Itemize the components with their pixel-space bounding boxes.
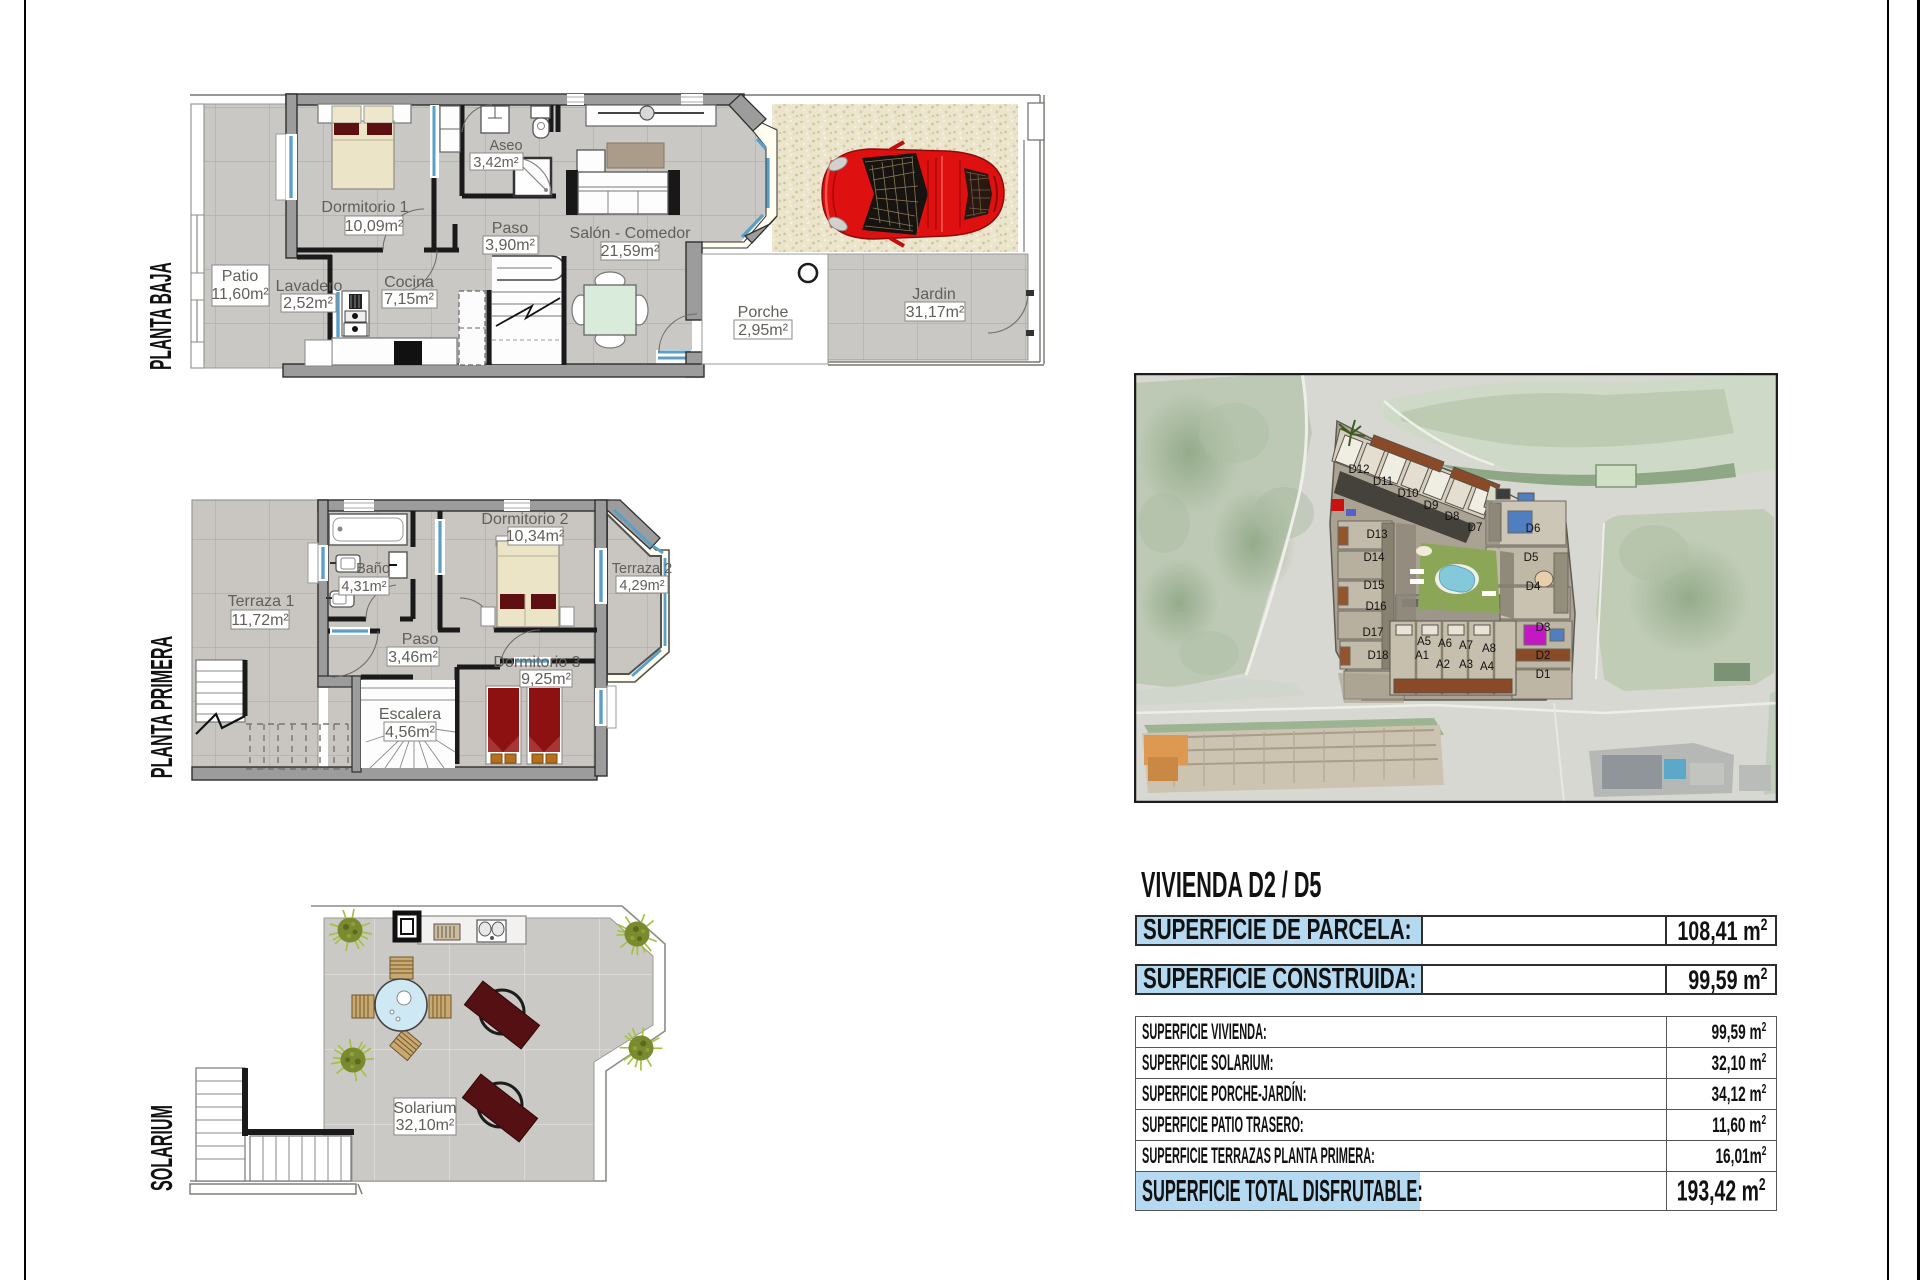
svg-text:D12: D12 — [1348, 464, 1369, 476]
svg-text:Terraza 1: Terraza 1 — [228, 593, 295, 610]
svg-text:21,59m²: 21,59m² — [601, 243, 660, 260]
svg-text:Solarium: Solarium — [393, 1100, 456, 1117]
svg-text:D4: D4 — [1526, 581, 1541, 593]
svg-text:9,25m²: 9,25m² — [521, 671, 571, 688]
svg-text:D14: D14 — [1363, 552, 1385, 564]
svg-text:Baño: Baño — [356, 561, 390, 577]
svg-text:D7: D7 — [1468, 522, 1483, 534]
svg-text:10,09m²: 10,09m² — [345, 218, 404, 235]
svg-text:D3: D3 — [1536, 622, 1551, 634]
svg-text:D17: D17 — [1362, 627, 1383, 639]
svg-text:10,34m²: 10,34m² — [506, 528, 565, 545]
svg-text:3,90m²: 3,90m² — [485, 237, 535, 254]
svg-text:4,29m²: 4,29m² — [619, 578, 664, 594]
svg-text:D2: D2 — [1536, 650, 1551, 662]
svg-text:A8: A8 — [1482, 643, 1496, 655]
svg-text:D9: D9 — [1424, 500, 1439, 512]
svg-text:A3: A3 — [1459, 659, 1473, 671]
svg-text:Lavadero: Lavadero — [276, 278, 343, 295]
svg-text:Dormitorio 3: Dormitorio 3 — [493, 654, 580, 671]
svg-text:D15: D15 — [1363, 580, 1384, 592]
svg-text:3,42m²: 3,42m² — [473, 155, 518, 171]
svg-text:D5: D5 — [1524, 552, 1539, 564]
svg-text:2,95m²: 2,95m² — [738, 322, 788, 339]
svg-text:31,17m²: 31,17m² — [906, 304, 965, 321]
svg-text:A4: A4 — [1480, 661, 1495, 673]
svg-text:Cocina: Cocina — [384, 274, 434, 291]
svg-text:4,31m²: 4,31m² — [341, 579, 386, 595]
svg-text:Dormitorio 2: Dormitorio 2 — [481, 511, 568, 528]
svg-text:Salón - Comedor: Salón - Comedor — [570, 225, 692, 242]
svg-text:3,46m²: 3,46m² — [388, 649, 438, 666]
svg-text:A2: A2 — [1436, 659, 1450, 671]
svg-text:A5: A5 — [1417, 636, 1431, 648]
svg-text:A7: A7 — [1459, 640, 1473, 652]
svg-text:D1: D1 — [1536, 669, 1551, 681]
svg-text:D8: D8 — [1445, 511, 1460, 523]
svg-text:Paso: Paso — [402, 631, 439, 648]
svg-text:Patio: Patio — [222, 268, 259, 285]
svg-text:Paso: Paso — [492, 220, 529, 237]
svg-text:Jardin: Jardin — [912, 286, 956, 303]
svg-text:A1: A1 — [1415, 650, 1429, 662]
svg-text:Escalera: Escalera — [379, 706, 441, 723]
svg-text:D18: D18 — [1367, 650, 1388, 662]
svg-text:2,52m²: 2,52m² — [283, 295, 333, 312]
svg-text:Aseo: Aseo — [489, 138, 522, 154]
svg-text:D10: D10 — [1397, 488, 1418, 500]
svg-text:Porche: Porche — [738, 304, 789, 321]
svg-text:11,60m²: 11,60m² — [211, 286, 269, 303]
svg-text:11,72m²: 11,72m² — [231, 612, 289, 629]
svg-text:A6: A6 — [1438, 638, 1452, 650]
svg-text:Dormitorio 1: Dormitorio 1 — [321, 199, 408, 216]
svg-text:D6: D6 — [1526, 523, 1541, 535]
svg-text:D11: D11 — [1373, 476, 1393, 488]
svg-text:D16: D16 — [1365, 601, 1386, 613]
svg-text:32,10m²: 32,10m² — [396, 1117, 455, 1134]
svg-text:Terraza 2: Terraza 2 — [612, 561, 672, 577]
svg-text:7,15m²: 7,15m² — [384, 291, 434, 308]
svg-text:D13: D13 — [1366, 529, 1387, 541]
svg-text:4,56m²: 4,56m² — [385, 724, 435, 741]
